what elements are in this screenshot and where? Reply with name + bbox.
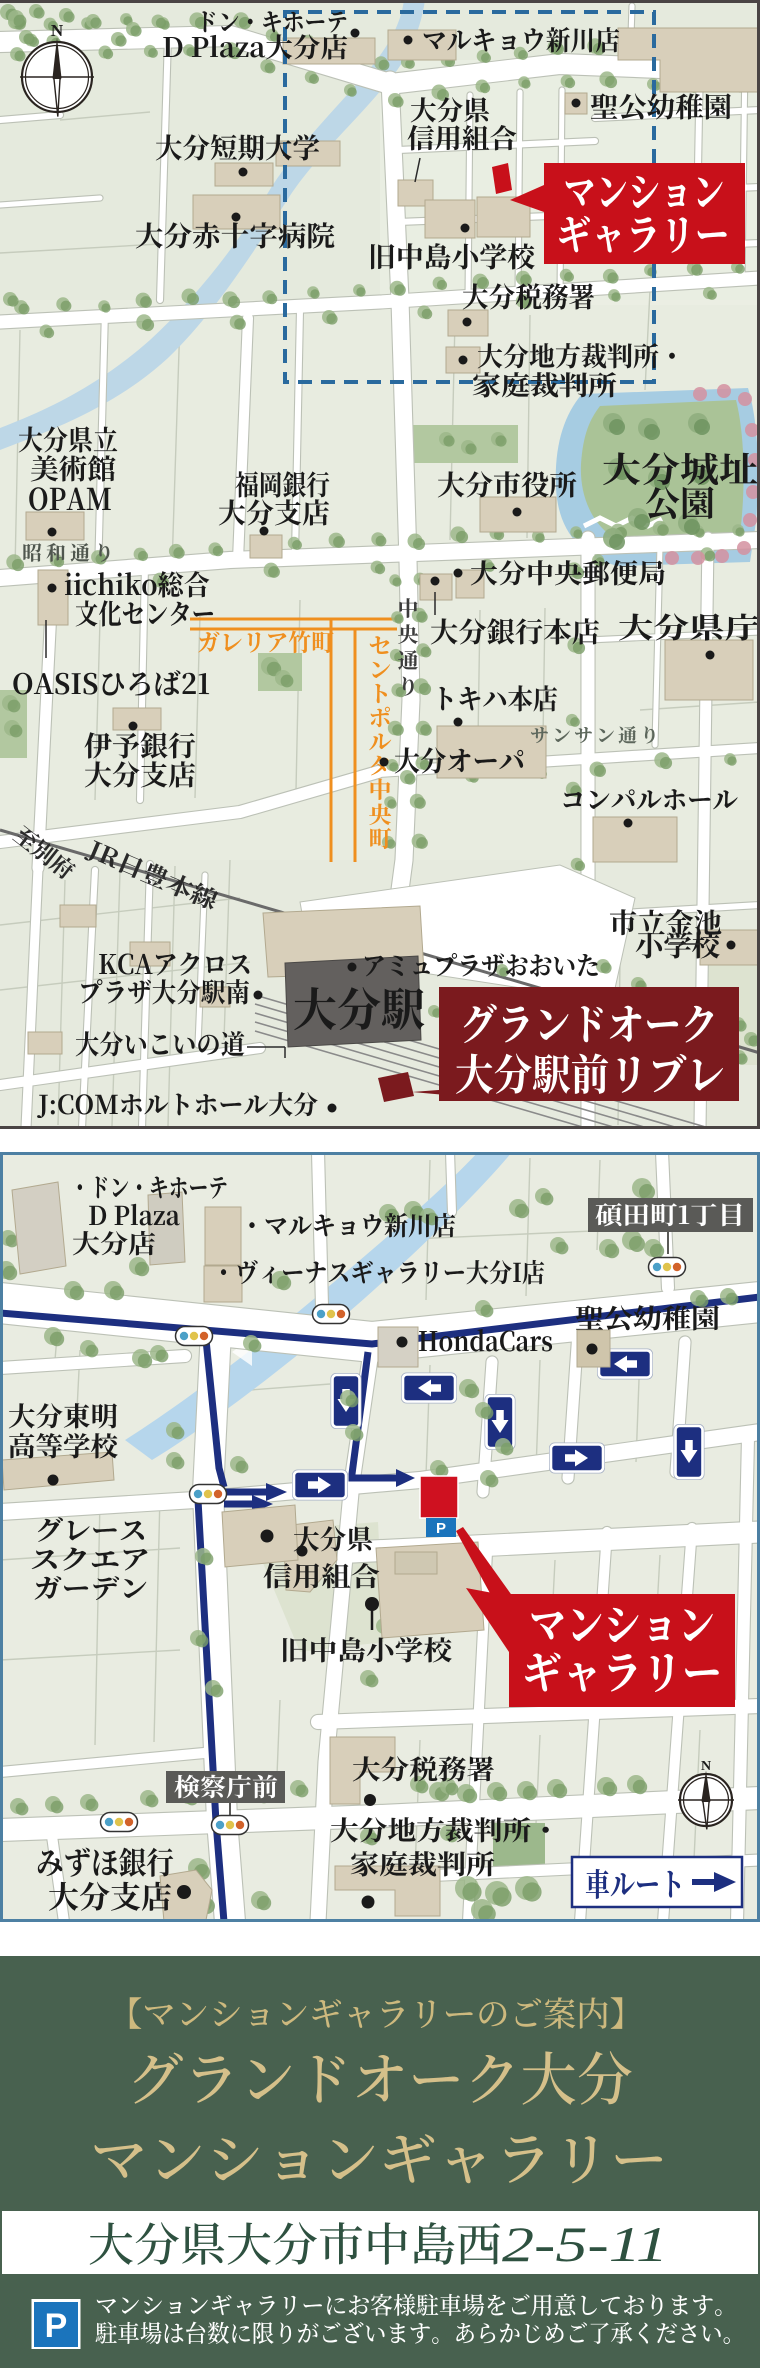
svg-text:家庭裁判所: 家庭裁判所: [350, 1843, 495, 1882]
svg-text:HondaCars: HondaCars: [418, 1320, 553, 1359]
svg-text:大分オーパ: 大分オーパ: [394, 740, 525, 780]
svg-text:大分支店: 大分支店: [218, 492, 330, 532]
svg-text:ギャラリー: ギャラリー: [557, 203, 730, 263]
svg-text:大分税務署: 大分税務署: [462, 276, 595, 316]
svg-text:P: P: [45, 2307, 68, 2345]
svg-text:コンパルホール: コンパルホール: [560, 780, 738, 817]
svg-text:大分税務署: 大分税務署: [352, 1748, 495, 1787]
svg-text:N: N: [51, 21, 64, 40]
svg-text:り: り: [398, 671, 419, 701]
svg-text:大分市役所: 大分市役所: [437, 464, 577, 504]
svg-text:文化センター: 文化センター: [75, 593, 215, 633]
svg-text:旧中島小学校: 旧中島小学校: [368, 236, 537, 276]
svg-text:大分店: 大分店: [72, 1224, 156, 1261]
svg-text:サンサン通り: サンサン通り: [530, 721, 662, 748]
svg-text:聖公幼稚園: 聖公幼稚園: [590, 86, 732, 126]
svg-text:グランドオーク大分: グランドオーク大分: [127, 2033, 633, 2117]
svg-text:公園: 公園: [645, 477, 715, 527]
svg-text:大分いこいの道: 大分いこいの道: [75, 1023, 245, 1062]
svg-text:大分駅: 大分駅: [293, 974, 425, 1040]
svg-text:マルキョウ新川店: マルキョウ新川店: [422, 19, 620, 58]
svg-text:信用組合: 信用組合: [407, 117, 517, 156]
svg-text:・マルキョウ新川店: ・マルキョウ新川店: [240, 1206, 456, 1243]
svg-text:・ヴィーナスギャラリー大分I店: ・ヴィーナスギャラリー大分I店: [212, 1253, 545, 1290]
svg-text:大分県大分市中島西: 大分県大分市中島西: [88, 2209, 502, 2275]
svg-text:ギャラリー: ギャラリー: [522, 1637, 722, 1702]
svg-text:検察庁前: 検察庁前: [174, 1768, 278, 1804]
svg-text:昭和通り: 昭和通り: [22, 537, 118, 566]
svg-text:信用組合: 信用組合: [263, 1555, 380, 1594]
svg-text:D Plaza大分店: D Plaza大分店: [162, 26, 348, 65]
svg-text:大分支店: 大分支店: [84, 754, 196, 794]
svg-text:車ルート: 車ルート: [585, 1860, 685, 1906]
svg-text:OPAM: OPAM: [28, 475, 112, 519]
svg-text:【マンションギャラリーのご案内】: 【マンションギャラリーのご案内】: [109, 1987, 643, 2036]
svg-text:大分短期大学: 大分短期大学: [155, 127, 320, 167]
svg-text:高等学校: 高等学校: [8, 1425, 120, 1464]
svg-text:プラザ大分駅南: プラザ大分駅南: [78, 971, 250, 1010]
svg-text:町: 町: [369, 821, 392, 854]
svg-text:旧中島小学校: 旧中島小学校: [280, 1629, 454, 1668]
svg-text:大分駅前リブレ: 大分駅前リブレ: [455, 1042, 725, 1103]
svg-text:トキハ本店: トキハ本店: [432, 678, 558, 718]
svg-text:大分県庁: 大分県庁: [618, 606, 760, 647]
svg-text:大分銀行本店: 大分銀行本店: [430, 611, 600, 651]
svg-text:P: P: [436, 1520, 446, 1537]
svg-text:碩田町1丁目: 碩田町1丁目: [595, 1196, 745, 1232]
svg-text:家庭裁判所: 家庭裁判所: [472, 364, 617, 403]
svg-text:マンションギャラリー: マンションギャラリー: [90, 2113, 668, 2197]
svg-text:聖公幼稚園: 聖公幼稚園: [575, 1297, 720, 1336]
svg-text:ガレリア竹町: ガレリア竹町: [197, 623, 334, 658]
svg-text:N: N: [701, 1759, 711, 1774]
svg-text:小学校: 小学校: [635, 925, 722, 965]
svg-text:J:COMホルトホール大分: J:COMホルトホール大分: [36, 1085, 318, 1122]
svg-text:駐車場は台数に限りがございます。あらかじめご了承ください。: 駐車場は台数に限りがございます。あらかじめご了承ください。: [94, 2314, 745, 2349]
svg-text:大分中央郵便局: 大分中央郵便局: [470, 552, 666, 591]
svg-text:ガーデン: ガーデン: [33, 1567, 148, 1606]
svg-text:2-5-11: 2-5-11: [502, 2216, 668, 2272]
svg-text:大分県: 大分県: [293, 1518, 374, 1557]
svg-text:OASISひろば21: OASISひろば21: [12, 663, 210, 703]
svg-text:大分支店: 大分支店: [48, 1872, 172, 1917]
